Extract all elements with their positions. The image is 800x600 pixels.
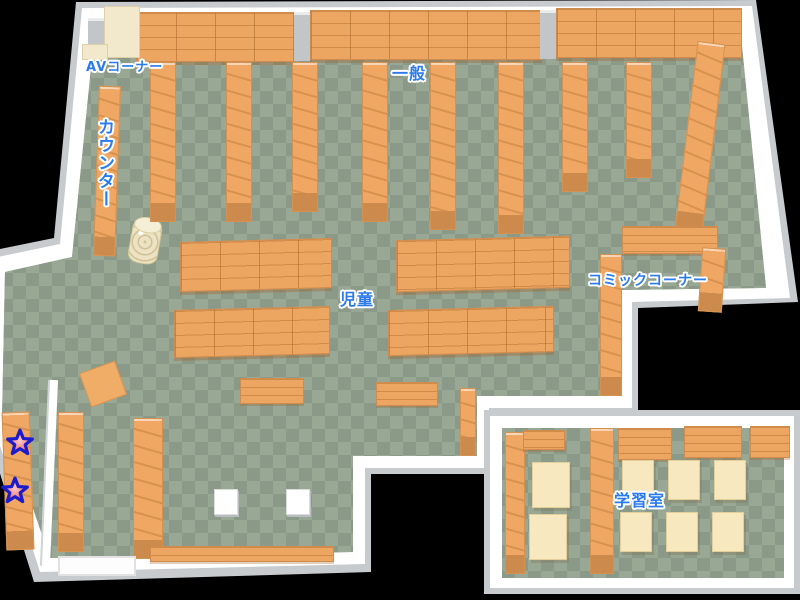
floor-pillar <box>214 489 238 515</box>
bookshelf-column <box>292 62 318 212</box>
study-table <box>712 512 744 552</box>
wall-pillar <box>540 10 556 59</box>
bookshelf-row-children <box>396 236 570 293</box>
bookshelf-edge <box>460 388 476 456</box>
bookshelf-row-children <box>174 306 330 358</box>
study-divider-shelf <box>590 428 614 574</box>
label-av-corner: AVコーナー <box>86 56 163 75</box>
study-bookshelf-west <box>505 432 525 574</box>
bookshelf-column <box>133 418 163 559</box>
low-bookshelf-south-wall <box>150 546 334 562</box>
study-table <box>529 514 567 560</box>
low-bookshelf <box>376 382 438 406</box>
study-table <box>668 460 700 500</box>
bookshelf-column <box>430 62 456 230</box>
bookshelf-row-top-center <box>310 10 542 60</box>
bookshelf-column <box>498 62 524 234</box>
bookshelf-row-children <box>180 238 332 292</box>
star-marker-icon[interactable] <box>6 428 34 456</box>
bookshelf-row-children <box>388 306 554 356</box>
low-bookshelf <box>240 378 304 404</box>
av-corner-cabinet <box>104 6 140 58</box>
floor-pillar <box>286 489 310 515</box>
label-general: 一般 <box>392 60 426 84</box>
study-bookshelf-top <box>523 430 565 450</box>
bookshelf-column <box>362 62 388 222</box>
label-comic-corner: コミックコーナー <box>588 270 708 290</box>
bookshelf-column <box>226 62 252 222</box>
study-table <box>532 462 570 508</box>
bookshelf-column <box>150 62 176 222</box>
study-table <box>620 512 652 552</box>
study-bookshelf <box>750 426 790 458</box>
star-marker-icon[interactable] <box>1 476 29 504</box>
study-bookshelf <box>618 428 672 460</box>
study-bookshelf <box>684 426 742 458</box>
study-table <box>714 460 746 500</box>
library-floor-map: AVコーナー カウンター 一般 児童 コミックコーナー 学習室 <box>0 0 800 600</box>
label-study-room: 学習室 <box>614 487 665 511</box>
bookshelf-column <box>562 62 588 192</box>
bookshelf-column <box>626 62 652 178</box>
label-children: 児童 <box>340 286 374 310</box>
bookshelf-row-top-west <box>136 12 296 62</box>
bookshelf-column <box>58 412 84 552</box>
study-table <box>666 512 698 552</box>
label-counter: カウンター <box>92 118 117 218</box>
entrance-door <box>58 556 136 576</box>
wall-pillar <box>294 12 310 61</box>
